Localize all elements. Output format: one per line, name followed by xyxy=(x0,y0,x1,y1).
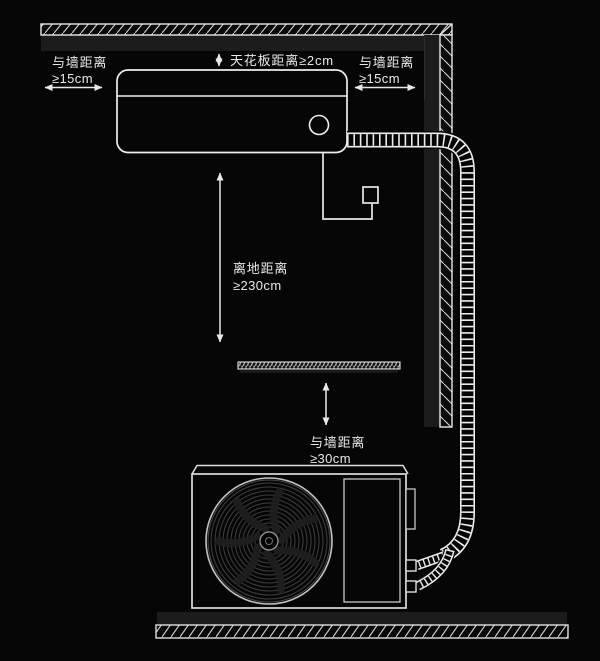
floor-shadow xyxy=(157,612,567,625)
indoor-unit xyxy=(117,70,347,153)
reference-wall-bar xyxy=(238,362,400,373)
outdoor-wall-clearance-value: ≥30cm xyxy=(310,451,351,466)
left-clearance-label: 与墙距离 xyxy=(52,55,107,70)
right-clearance-value: ≥15cm xyxy=(359,71,400,86)
indoor-unit-body xyxy=(117,70,347,153)
outdoor-wall-clearance-label: 与墙距离 xyxy=(310,435,365,450)
wall-hatch-band xyxy=(440,35,452,427)
right-clearance-label: 与墙距离 xyxy=(359,55,414,70)
ceiling-hatch-band xyxy=(41,24,452,35)
floor xyxy=(156,612,568,638)
ceiling xyxy=(41,24,452,51)
floor-hatch-band xyxy=(156,625,568,638)
outdoor-unit xyxy=(192,466,415,609)
ceiling-clearance-label: 天花板距离≥2cm xyxy=(230,53,334,68)
fan-hub xyxy=(260,532,278,550)
diagram-canvas: 与墙距离 ≥15cm 天花板距离≥2cm 与墙距离 ≥15cm 离地距离 ≥23… xyxy=(0,0,600,661)
left-clearance-value: ≥15cm xyxy=(52,71,93,86)
reference-bar-shadow xyxy=(240,370,398,373)
installation-diagram: 与墙距离 ≥15cm 天花板距离≥2cm 与墙距离 ≥15cm 离地距离 ≥23… xyxy=(0,0,600,661)
wall-shadow xyxy=(424,35,440,427)
floor-clearance-label: 离地距离 xyxy=(233,261,288,276)
pipe-cover-bracket xyxy=(406,489,415,529)
wall-socket xyxy=(363,187,378,203)
floor-clearance-value: ≥230cm xyxy=(233,278,282,293)
reference-bar xyxy=(238,362,400,369)
ceiling-shadow xyxy=(41,35,440,51)
pipe-stub-upper xyxy=(406,560,416,571)
right-wall xyxy=(424,24,452,427)
pipe-stub-lower xyxy=(406,581,416,592)
